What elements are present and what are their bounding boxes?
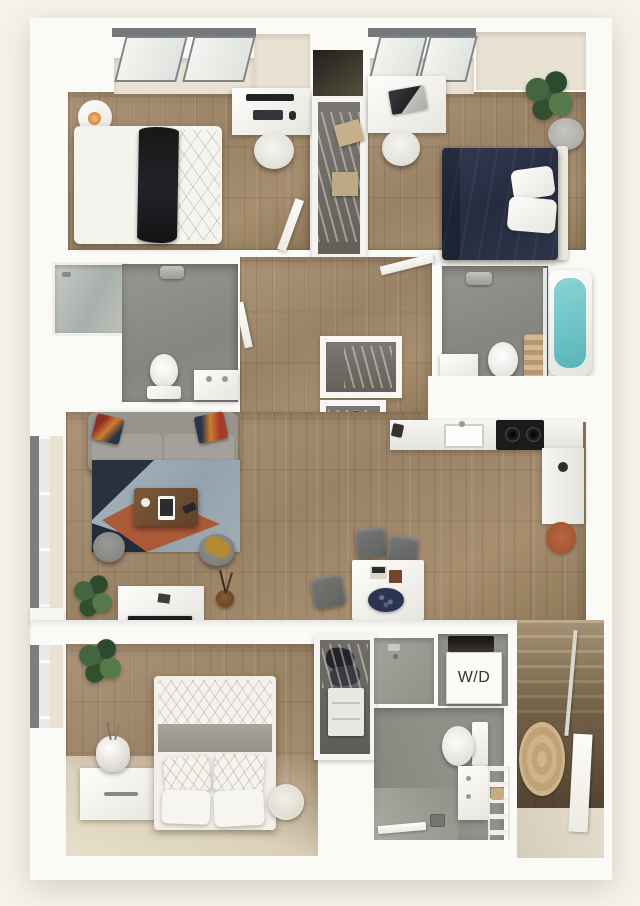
drawer-line: [332, 702, 360, 704]
toilet-tank: [147, 386, 181, 399]
toilet: [150, 354, 178, 388]
pillow: [213, 789, 265, 828]
floor-plan: W/D: [0, 0, 640, 906]
pillow: [507, 196, 558, 234]
window-glass-icon: [39, 436, 50, 728]
washer-top: [448, 636, 494, 652]
bedroom1-wall-face: [254, 34, 310, 92]
towel-icon: [491, 788, 504, 800]
jute-rug: [519, 722, 565, 796]
faucet-icon: [222, 376, 228, 382]
lamp-icon: [88, 112, 101, 125]
drawer-line: [332, 718, 360, 720]
keyboard-icon: [253, 110, 283, 120]
bathtub-water: [554, 278, 586, 368]
table-item-box: [389, 570, 402, 583]
dresser-handle: [104, 792, 138, 796]
faucet-icon: [459, 421, 465, 427]
window-sill: [50, 436, 63, 728]
monitor-icon: [246, 94, 294, 101]
glass-screen-icon: [543, 268, 547, 378]
floor-drain-icon: [430, 814, 445, 827]
kitchen-counter: [390, 420, 583, 450]
mug-icon: [141, 498, 150, 507]
window-pane-icon: [114, 36, 187, 82]
vase-lamp: [96, 736, 130, 772]
kitchen-sink: [444, 424, 484, 448]
towel-ladder: [488, 766, 510, 840]
desk-chair: [382, 130, 420, 166]
washer-dryer-label: W/D: [446, 652, 502, 704]
mouse-icon: [289, 111, 296, 120]
shower-head-icon: [388, 644, 400, 651]
pillow: [163, 754, 212, 794]
ceiling-light-icon: [160, 266, 184, 279]
table-item-dark: [372, 567, 385, 573]
toilet-tank: [472, 722, 488, 766]
walk-in-shower-floor: [374, 638, 434, 704]
counter-bowl-icon: [558, 462, 568, 472]
faucet-icon: [466, 794, 471, 799]
hanging-clothes-icon: [344, 346, 392, 388]
plant-icon: [74, 638, 126, 688]
plant-icon: [70, 574, 116, 622]
vanity-sink: [458, 766, 488, 820]
faucet-icon: [206, 376, 212, 382]
burner-icon: [526, 427, 541, 442]
ceiling-light-icon: [466, 272, 492, 285]
pillow: [510, 165, 556, 201]
window-pane-icon: [182, 36, 255, 82]
pillow: [161, 789, 210, 825]
kitchen-wall: [428, 376, 612, 422]
shower-head-icon: [62, 272, 71, 277]
bed-duvet-pattern: [176, 130, 220, 240]
black-throw-blanket: [137, 127, 179, 244]
tablet-screen-icon: [160, 499, 173, 516]
folded-linens: [332, 172, 358, 196]
pillow: [213, 752, 266, 793]
burner-icon: [505, 427, 520, 442]
round-rust-rug: [546, 522, 576, 554]
hanger-wires-icon: [322, 644, 368, 688]
faucet-icon: [466, 776, 471, 781]
serving-platter: [368, 588, 404, 612]
closet-top-cap: [313, 50, 363, 96]
shower-drain-icon: [393, 654, 398, 659]
kitchen-side-counter: [542, 448, 584, 524]
desk-chair: [254, 132, 294, 169]
patterned-duvet: [158, 680, 272, 726]
entry-floor: [517, 808, 604, 858]
drawer-unit: [328, 688, 364, 736]
duvet-gray-band: [158, 724, 272, 754]
round-pouf: [268, 784, 304, 820]
ottoman: [93, 532, 125, 562]
vanity-sink: [194, 370, 238, 400]
toilet: [442, 726, 474, 766]
dining-chair: [355, 527, 387, 559]
toilet: [488, 342, 518, 378]
staircase: [517, 620, 604, 724]
bed-fold-shadow: [442, 148, 460, 260]
washer-dryer-text: W/D: [458, 669, 491, 687]
console-decor: [157, 593, 170, 604]
window-frame-icon: [30, 436, 39, 728]
dining-chair: [310, 573, 347, 609]
